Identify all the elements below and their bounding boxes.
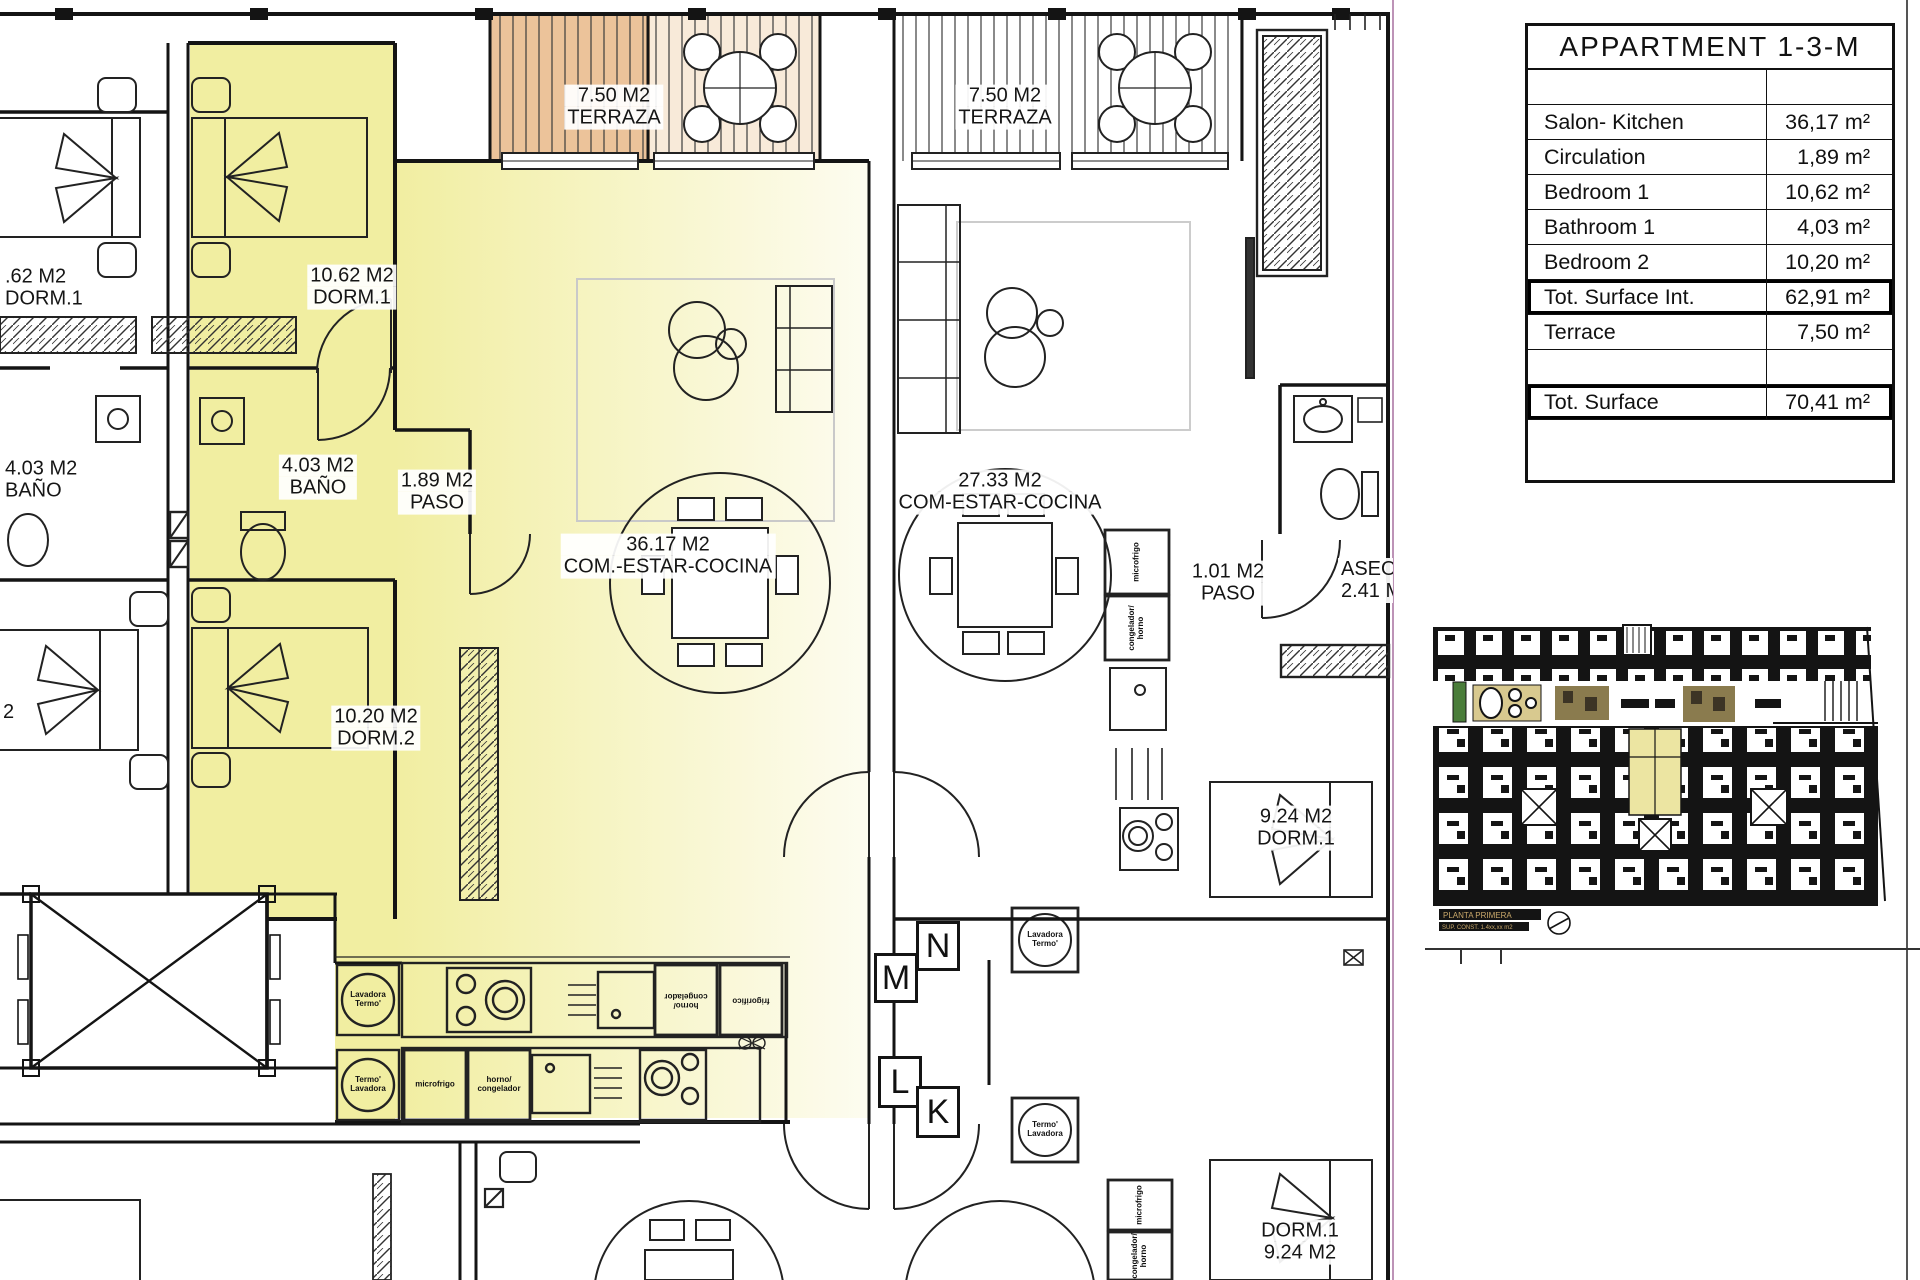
plot-boundary-line: [1392, 0, 1394, 1280]
table-row-total: Tot. Surface70,41 m²: [1528, 385, 1892, 420]
floor-plan-drawing: [0, 0, 1405, 1280]
label-hall: 1.89 M2PASO: [398, 470, 476, 515]
label-salon: 36.17 M2COM.-ESTAR-COCINA: [561, 534, 776, 579]
table-row-total-int: Tot. Surface Int.62,91 m²: [1528, 280, 1892, 315]
key-plan-icon-strip: [1433, 681, 1878, 725]
table-row: [1528, 70, 1892, 105]
unit-letter-k: K: [916, 1086, 960, 1138]
table-row: Bathroom 14,03 m²: [1528, 210, 1892, 245]
key-plan-title: PLANTA PRIMERA: [1443, 911, 1512, 920]
oven-label: horno/congelador: [477, 1076, 520, 1094]
freezer-right-label: congelador/horno: [1128, 605, 1146, 650]
label-terrace-left: 7.50 M2TERRAZA: [564, 85, 663, 130]
key-plan-subtitle: SUP. CONST. 1.4xx,xx m2: [1442, 925, 1513, 931]
floor-plan-sheet: 7.50 M2TERRAZA 7.50 M2TERRAZA .62 M2DORM…: [0, 0, 1920, 1280]
label-bedroom1-right: 9.24 M2DORM.1: [1254, 806, 1338, 851]
table-row: [1528, 350, 1892, 385]
label-aseo: ASEO2.41 M: [1338, 558, 1393, 603]
label-terrace-right: 7.50 M2TERRAZA: [955, 85, 1054, 130]
label-bedroom1: 10.62 M2DORM.1: [307, 265, 396, 310]
table-row: Bedroom 110,62 m²: [1528, 175, 1892, 210]
label-hall-right: 1.01 M2PASO: [1189, 561, 1267, 606]
microwave-label: microfrigo: [415, 1081, 455, 1090]
table-row: Salon- Kitchen36,17 m²: [1528, 105, 1892, 140]
washer-bottom-label: Termo'Lavadora: [1027, 1121, 1063, 1139]
letterbox-icon: [1344, 950, 1363, 965]
label-bedroom1-left-cut: .62 M2DORM.1: [2, 266, 86, 311]
table-filler: [1528, 420, 1892, 480]
bottom-apartments: [0, 1152, 784, 1280]
micro-bottom-label: microfrigo: [1136, 1185, 1145, 1225]
key-plan-top-band: [1433, 625, 1871, 681]
label-bathroom-left-cut: 4.03 M2BAÑO: [2, 458, 80, 503]
fridge-label: frigorifico: [732, 996, 769, 1005]
key-plan-thumbnail: PLANTA PRIMERA SUP. CONST. 1.4xx,xx m2: [1433, 623, 1893, 945]
freezer-bottom-label: congelador/horno: [1131, 1233, 1149, 1278]
table-row: Terrace7,50 m²: [1528, 315, 1892, 350]
table-row: Bedroom 210,20 m²: [1528, 245, 1892, 280]
table-row: Circulation1,89 m²: [1528, 140, 1892, 175]
label-bedroom1-bottom-right: DORM.19.24 M2: [1258, 1220, 1342, 1265]
unit-letter-n: N: [916, 921, 960, 971]
label-bedroom2-left-fragment: 2: [0, 701, 17, 723]
washer-right-label: LavadoraTermo': [1027, 931, 1063, 949]
key-plan-main-band: [1433, 727, 1877, 905]
label-bedroom2: 10.20 M2DORM.2: [331, 706, 420, 751]
washer2-label: Termo'Lavadora: [350, 1076, 386, 1094]
washer1-label: LavadoraTermo': [350, 991, 386, 1009]
key-plan-title-block: PLANTA PRIMERA SUP. CONST. 1.4xx,xx m2: [1439, 909, 1570, 934]
label-bathroom: 4.03 M2BAÑO: [279, 455, 357, 500]
label-salon-right: 27.33 M2COM-ESTAR-COCINA: [896, 470, 1105, 515]
oven-flipped-label: horno/congelador: [664, 991, 707, 1009]
micro-right-label: microfrigo: [1133, 542, 1142, 582]
page-edge-line: [1906, 0, 1908, 1280]
area-table-title: APPARTMENT 1-3-M: [1528, 26, 1892, 70]
frame-tick: [1460, 948, 1462, 964]
area-table: APPARTMENT 1-3-M Salon- Kitchen36,17 m² …: [1525, 23, 1895, 483]
unit-letter-m: M: [874, 953, 918, 1003]
frame-tick: [1500, 948, 1502, 964]
label-aseo-clip: ASEO2.41 M: [1338, 558, 1393, 616]
